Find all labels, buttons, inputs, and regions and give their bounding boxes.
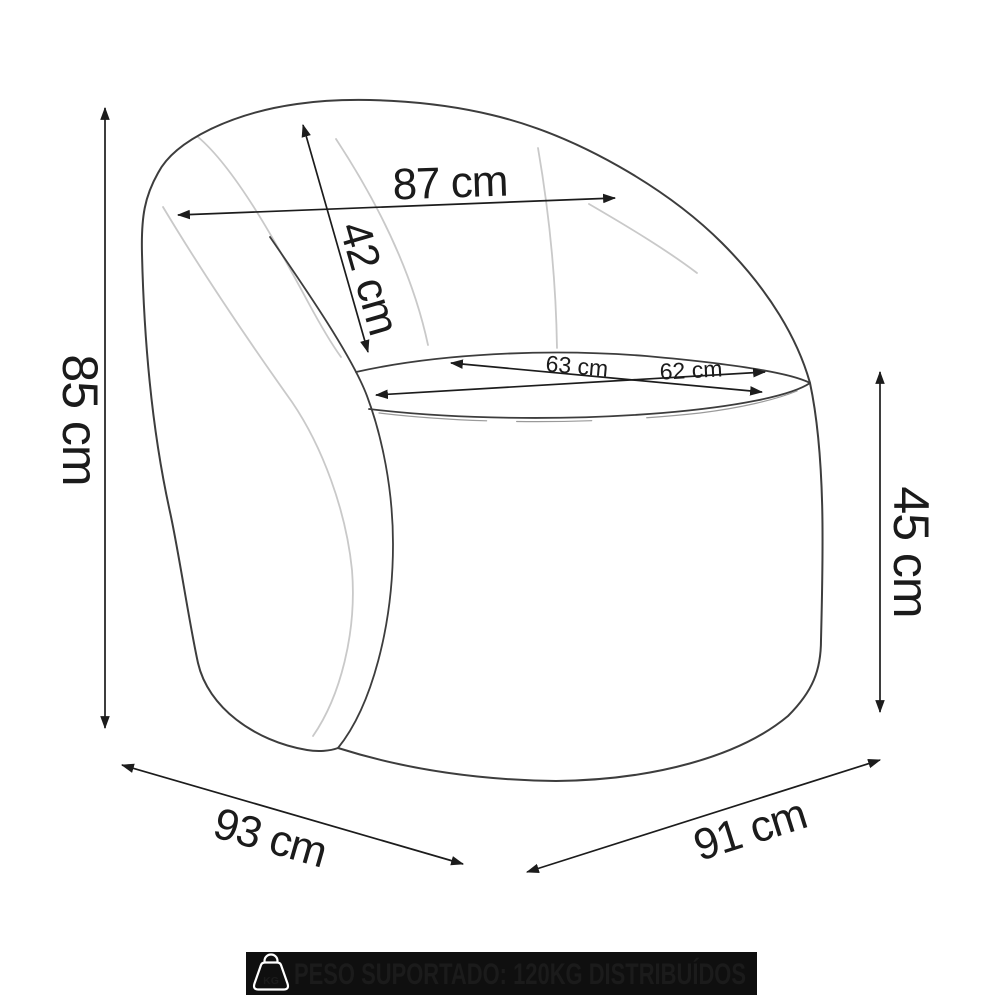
- dimension-overall-height: 85 cm: [52, 108, 108, 728]
- seam-line-back-left: [198, 137, 341, 357]
- dimension-diagram-canvas: 87 cm 42 cm 63 cm 62 cm 85 cm 45 cm 93 c…: [0, 0, 1000, 1000]
- dimension-back-width: 87 cm: [178, 157, 615, 215]
- seam-line-arm-front: [163, 207, 353, 736]
- seat-bottom-arc: [369, 383, 810, 418]
- kg-weight-label: KG: [263, 975, 279, 987]
- dimension-overall-width: 91 cm: [527, 760, 880, 872]
- banner-text: PESO SUPORTADO: 120KG DISTRIBUÍDOS: [294, 957, 746, 991]
- dimension-annotations: 87 cm 42 cm 63 cm 62 cm 85 cm 45 cm 93 c…: [52, 108, 939, 877]
- dimension-label: 85 cm: [52, 354, 108, 485]
- fabric-seam-lines: [163, 137, 697, 736]
- weight-capacity-banner: KG PESO SUPORTADO: 120KG DISTRIBUÍDOS: [246, 952, 757, 995]
- dimension-label: 63 cm: [545, 350, 610, 381]
- seam-line-back-far-right: [589, 204, 697, 273]
- dimension-label: 62 cm: [659, 355, 723, 384]
- dimension-label: 87 cm: [392, 157, 508, 210]
- dimension-overall-depth: 93 cm: [122, 765, 463, 877]
- dimension-seat-floor-height: 45 cm: [880, 372, 939, 712]
- product-dimension-diagram: 87 cm 42 cm 63 cm 62 cm 85 cm 45 cm 93 c…: [0, 0, 1000, 1000]
- dimension-label: 93 cm: [208, 799, 332, 878]
- dimension-label: 45 cm: [883, 486, 939, 617]
- dimension-label: 42 cm: [330, 216, 409, 340]
- seam-line-back-right: [538, 148, 557, 348]
